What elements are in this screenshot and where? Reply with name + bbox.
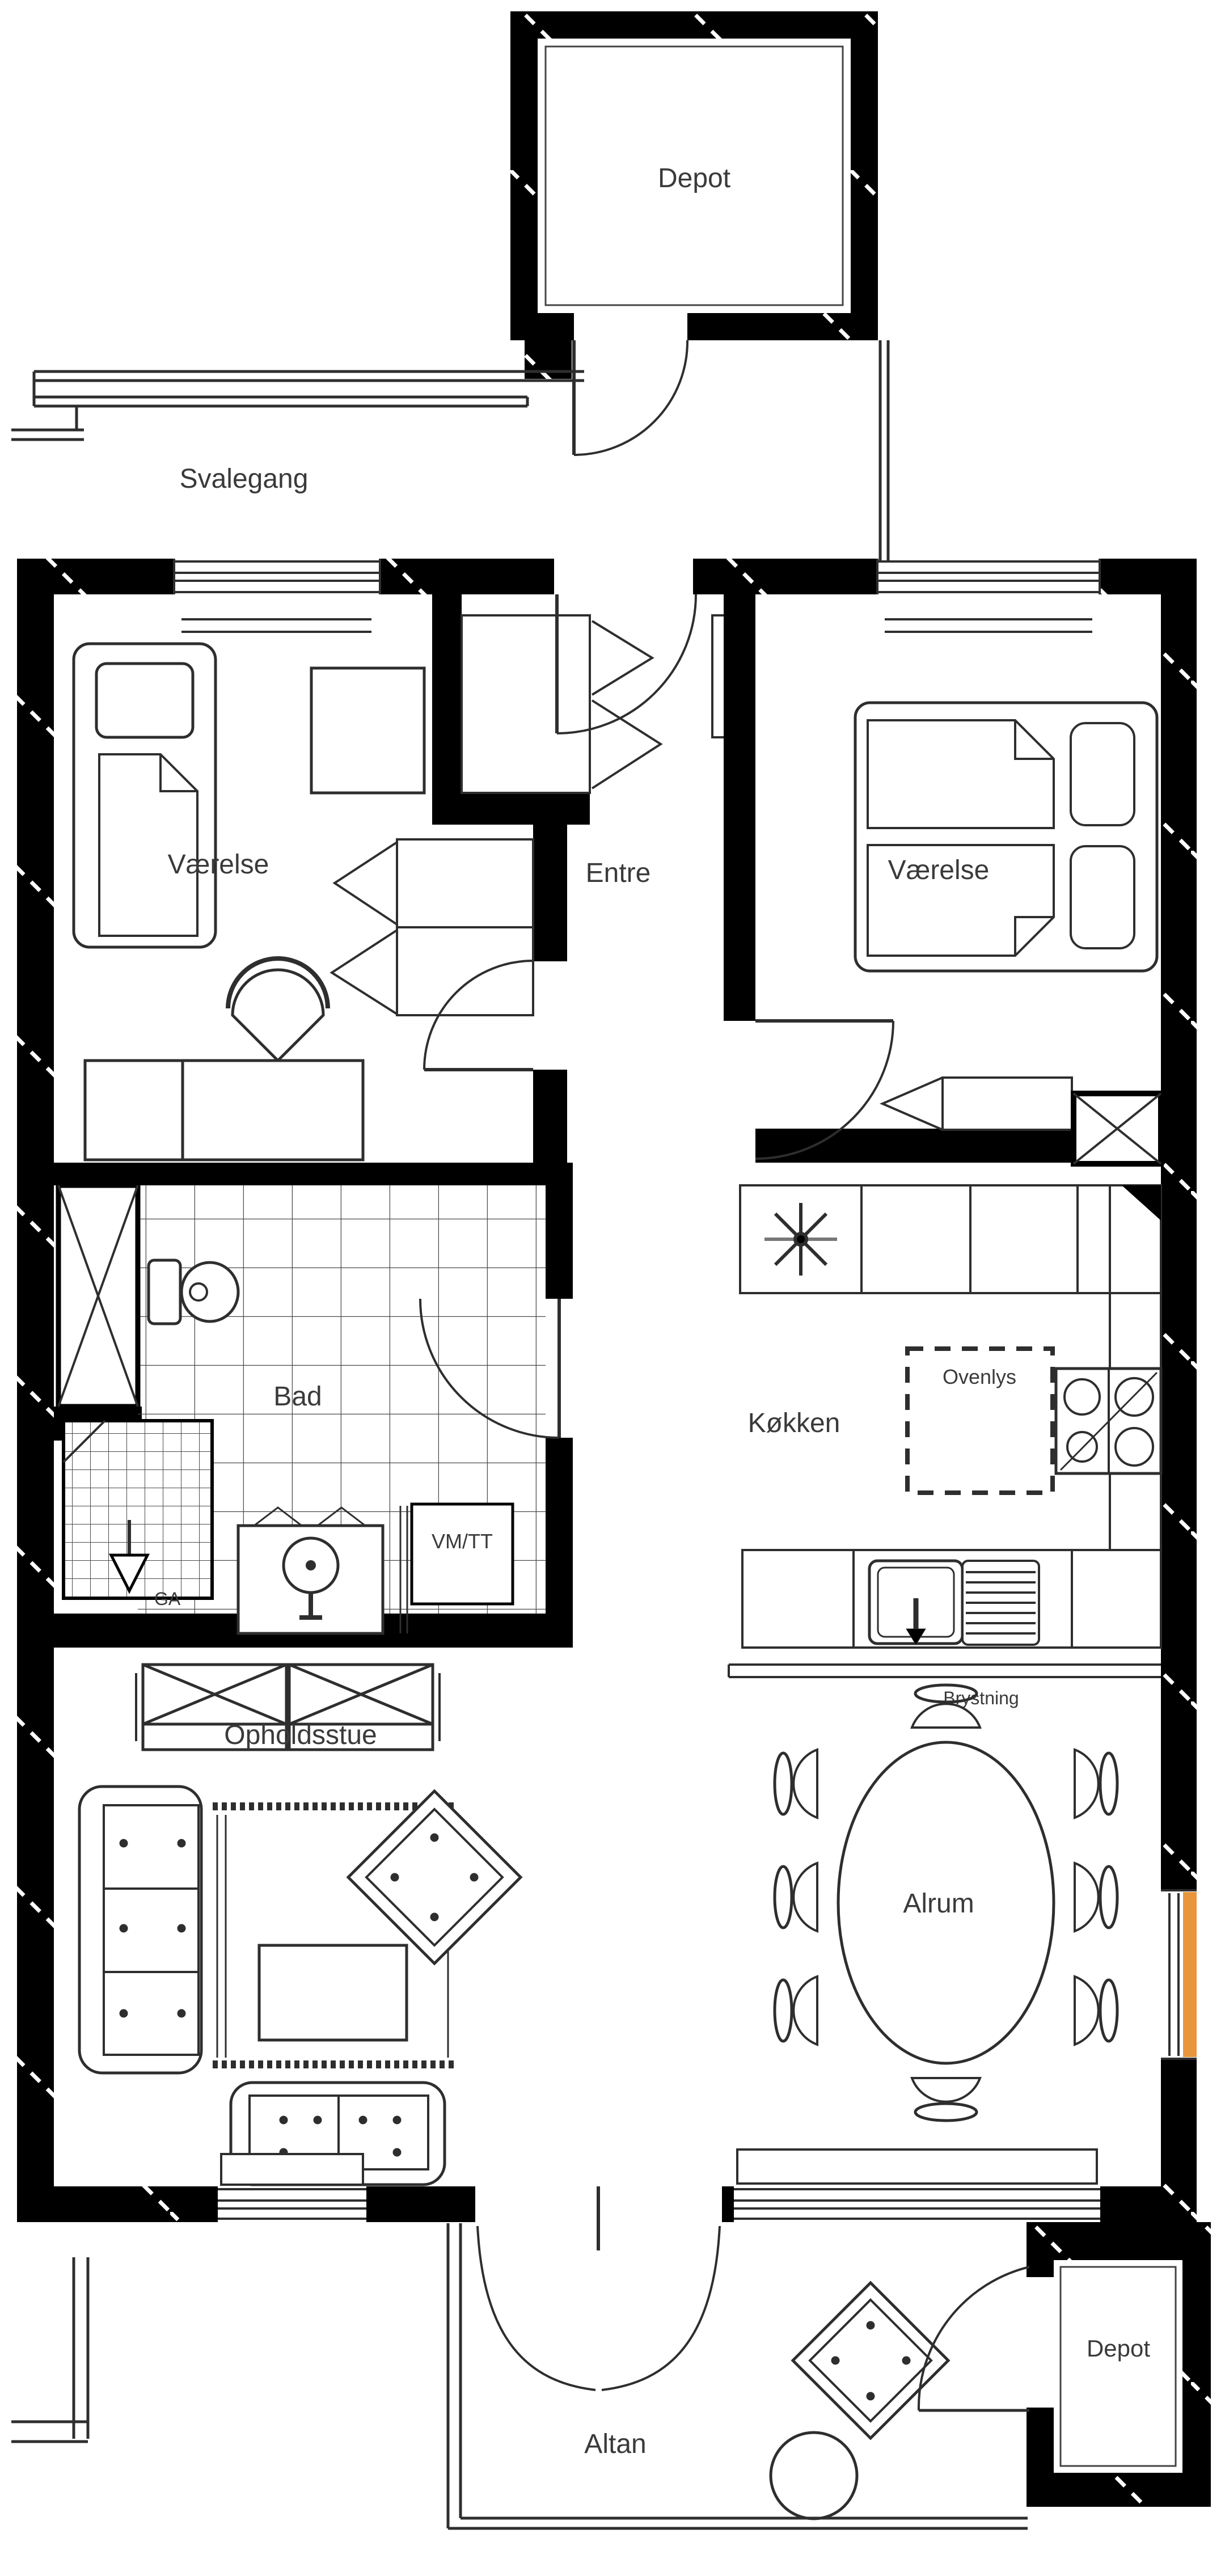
sofa-three-seat	[79, 1787, 201, 2073]
bath-vanity	[238, 1506, 407, 1633]
label-ovenlys: Ovenlys	[943, 1365, 1016, 1388]
room-label-alrum: Alrum	[903, 1889, 974, 1919]
shower	[64, 1421, 212, 1598]
duct-shaft-bath	[58, 1185, 138, 1407]
room-label-koekken: Køkken	[748, 1408, 840, 1438]
window-bottom-right	[734, 2150, 1100, 2219]
label-ga: GA	[154, 1589, 181, 1609]
room-label-svalegang: Svalegang	[180, 464, 309, 494]
svalegang-wall-stub	[525, 340, 572, 379]
accent-window-strip	[1183, 1892, 1197, 2057]
room-label-depot-top: Depot	[658, 163, 730, 193]
duct-shaft-bedroom	[1074, 1093, 1161, 1164]
floorplan-drawing: Depot Svalegang	[0, 0, 1225, 2576]
bed-double	[855, 703, 1157, 971]
desk	[85, 1061, 363, 1160]
label-vm-tt: VM/TT	[432, 1530, 493, 1553]
room-label-opholdsstue: Opholdsstue	[224, 1720, 377, 1750]
room-label-depot-bottom: Depot	[1087, 2335, 1150, 2362]
room-label-entre: Entre	[586, 858, 651, 888]
washer-dryer: VM/TT	[412, 1504, 513, 1604]
room-label-altan: Altan	[584, 2429, 646, 2459]
floorplan-page: Depot Svalegang	[0, 0, 1225, 2576]
sink-icon	[869, 1561, 962, 1645]
room-label-bad: Bad	[273, 1382, 322, 1412]
drainboard-icon	[962, 1561, 1039, 1645]
fridge-icon	[764, 1203, 837, 1276]
toilet-icon	[149, 1260, 238, 1324]
room-label-vaerelse-right: Værelse	[888, 855, 990, 885]
bed-single	[74, 644, 216, 947]
stove-icon	[1056, 1369, 1161, 1473]
room-label-vaerelse-left: Værelse	[168, 850, 269, 880]
